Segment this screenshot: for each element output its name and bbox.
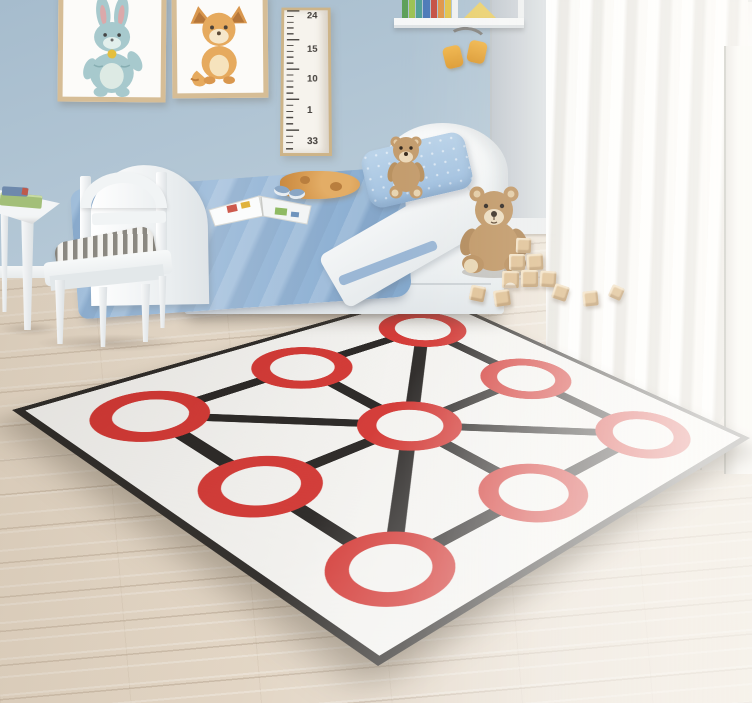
wooden-block xyxy=(469,285,487,303)
shelf-book xyxy=(438,0,444,19)
plush-spot xyxy=(300,176,310,184)
red-book xyxy=(21,188,28,196)
plush-spot xyxy=(330,182,342,191)
fox-illustration xyxy=(177,0,264,93)
shelf-book xyxy=(402,0,408,19)
wooden-block xyxy=(521,270,538,287)
bunny-illustration xyxy=(63,0,162,97)
growth-chart-ruler: 24 15 10 1 33 xyxy=(280,8,332,156)
shelf-book xyxy=(423,0,430,19)
wooden-block xyxy=(509,254,525,270)
framed-print-fox xyxy=(172,0,269,98)
chair-slat xyxy=(92,211,166,226)
shelf-book xyxy=(416,0,422,19)
window-frame xyxy=(724,46,752,474)
ruler-label: 15 xyxy=(307,45,328,56)
wooden-block xyxy=(516,238,532,254)
bedroom-scene: 24 15 10 1 33 xyxy=(0,0,752,703)
ruler-label: 1 xyxy=(307,105,329,117)
ruler-label: 24 xyxy=(307,11,328,22)
shelf-divider xyxy=(452,0,458,20)
wooden-block xyxy=(582,290,598,306)
wooden-arch-block xyxy=(502,271,519,288)
wooden-block xyxy=(493,289,511,307)
shelf-book xyxy=(409,0,415,19)
ruler-label: 10 xyxy=(307,74,328,85)
shelf-book xyxy=(431,0,437,19)
shelf-book xyxy=(445,0,451,19)
shelf-side xyxy=(518,0,524,20)
ruler-label: 33 xyxy=(307,136,329,148)
framed-print-bunny xyxy=(58,0,167,102)
teddy-bear-small xyxy=(382,130,434,202)
ruler-major-ticks xyxy=(286,10,299,153)
wooden-block xyxy=(527,254,544,271)
